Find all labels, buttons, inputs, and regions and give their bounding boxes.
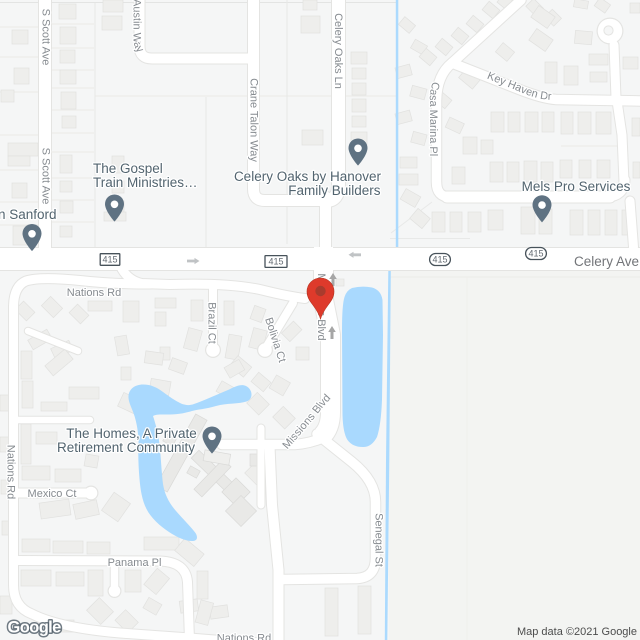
svg-text:415: 415: [432, 255, 447, 265]
svg-text:The Gospel: The Gospel: [93, 161, 163, 176]
svg-text:Mels Pro Services: Mels Pro Services: [522, 179, 631, 194]
svg-text:S Scott Ave: S Scott Ave: [40, 148, 52, 205]
svg-text:Family Builders: Family Builders: [288, 183, 381, 198]
svg-text:Retirement Community: Retirement Community: [57, 440, 195, 455]
svg-text:Celery Oaks Ln: Celery Oaks Ln: [332, 13, 344, 89]
svg-text:Mexico Ct: Mexico Ct: [28, 488, 77, 500]
svg-text:The Homes, A Private: The Homes, A Private: [66, 426, 197, 441]
svg-text:Map data ©2021 Google: Map data ©2021 Google: [517, 626, 637, 638]
svg-text:n Sanford: n Sanford: [0, 207, 57, 222]
svg-text:Celery Oaks by Hanover: Celery Oaks by Hanover: [234, 169, 382, 184]
svg-text:Train Ministries…: Train Ministries…: [93, 175, 198, 190]
svg-text:415: 415: [102, 255, 117, 265]
svg-text:S Scott Ave: S Scott Ave: [40, 9, 52, 66]
svg-text:415: 415: [528, 249, 543, 259]
svg-text:Panama Pl: Panama Pl: [108, 557, 162, 569]
svg-text:415: 415: [268, 257, 283, 267]
svg-text:Google: Google: [8, 619, 62, 637]
svg-text:Nations Rd: Nations Rd: [5, 445, 17, 499]
svg-text:Senegal St: Senegal St: [373, 513, 385, 567]
svg-text:Crane Talon Way: Crane Talon Way: [248, 78, 260, 162]
svg-text:Nations Rd: Nations Rd: [67, 287, 121, 299]
svg-text:Brazil Ct: Brazil Ct: [206, 302, 218, 344]
svg-text:Celery Ave: Celery Ave: [574, 254, 639, 269]
svg-text:Nations Rd: Nations Rd: [217, 633, 271, 640]
